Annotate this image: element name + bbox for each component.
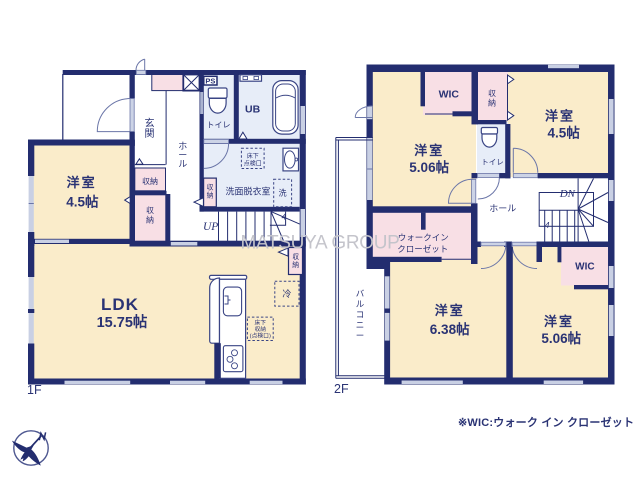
svg-text:DN: DN bbox=[559, 188, 576, 200]
svg-text:4.5帖: 4.5帖 bbox=[66, 194, 99, 210]
svg-text:15.75帖: 15.75帖 bbox=[97, 313, 148, 331]
svg-text:PS: PS bbox=[205, 76, 215, 85]
svg-text:納: 納 bbox=[292, 260, 299, 269]
svg-text:クローゼット: クローゼット bbox=[397, 244, 448, 254]
svg-text:納: 納 bbox=[207, 191, 214, 200]
svg-text:洋室: 洋室 bbox=[545, 109, 575, 124]
svg-text:UB: UB bbox=[245, 104, 261, 116]
svg-text:LDK: LDK bbox=[101, 295, 139, 314]
svg-text:WIC: WIC bbox=[575, 261, 594, 272]
svg-text:ニ: ニ bbox=[356, 320, 365, 330]
svg-text:洋室: 洋室 bbox=[414, 143, 444, 158]
svg-text:MATSUYA GROUP: MATSUYA GROUP bbox=[240, 233, 399, 254]
svg-text:収: 収 bbox=[292, 253, 299, 261]
svg-text:床下: 床下 bbox=[247, 152, 259, 160]
svg-text:洋室: 洋室 bbox=[435, 303, 465, 318]
svg-text:床下: 床下 bbox=[254, 319, 266, 327]
svg-text:点検口: 点検口 bbox=[244, 160, 262, 168]
svg-text:玄: 玄 bbox=[145, 117, 155, 130]
svg-text:5.06帖: 5.06帖 bbox=[409, 159, 449, 175]
svg-text:トイレ: トイレ bbox=[207, 121, 231, 130]
svg-text:収納: 収納 bbox=[254, 325, 266, 333]
svg-text:(点検口): (点検口) bbox=[250, 332, 271, 340]
svg-text:ー: ー bbox=[356, 331, 365, 341]
svg-text:洋室: 洋室 bbox=[544, 314, 574, 329]
svg-text:収納: 収納 bbox=[142, 176, 158, 186]
svg-text:ル: ル bbox=[356, 299, 365, 309]
svg-text:UP: UP bbox=[203, 221, 218, 233]
svg-text:洗面脱衣室: 洗面脱衣室 bbox=[225, 186, 270, 197]
svg-text:収: 収 bbox=[146, 205, 154, 215]
svg-text:コ: コ bbox=[356, 310, 365, 320]
svg-text:収: 収 bbox=[207, 184, 214, 192]
svg-text:関: 関 bbox=[145, 128, 155, 140]
svg-text:1F: 1F bbox=[27, 383, 42, 397]
svg-text:6.38帖: 6.38帖 bbox=[430, 321, 470, 337]
svg-text:トイレ: トイレ bbox=[481, 157, 504, 166]
svg-text:2F: 2F bbox=[334, 382, 349, 396]
svg-text:4: 4 bbox=[545, 220, 550, 230]
svg-text:納: 納 bbox=[488, 98, 496, 108]
svg-text:ホール: ホール bbox=[489, 204, 516, 214]
svg-text:バ: バ bbox=[356, 289, 365, 299]
svg-text:ウォークイン: ウォークイン bbox=[398, 233, 449, 243]
svg-text:洋室: 洋室 bbox=[67, 175, 97, 190]
svg-text:4: 4 bbox=[282, 212, 287, 222]
svg-text:冷: 冷 bbox=[282, 288, 291, 299]
svg-text:納: 納 bbox=[146, 215, 154, 225]
svg-text:4.5帖: 4.5帖 bbox=[548, 125, 581, 141]
svg-text:ル: ル bbox=[178, 159, 187, 169]
svg-text:収: 収 bbox=[488, 88, 496, 98]
svg-text:※WIC:ウォーク イン クローゼット: ※WIC:ウォーク イン クローゼット bbox=[458, 415, 634, 429]
svg-text:洗: 洗 bbox=[279, 188, 287, 198]
svg-text:WIC: WIC bbox=[439, 89, 460, 101]
svg-text:5.06帖: 5.06帖 bbox=[541, 330, 581, 346]
